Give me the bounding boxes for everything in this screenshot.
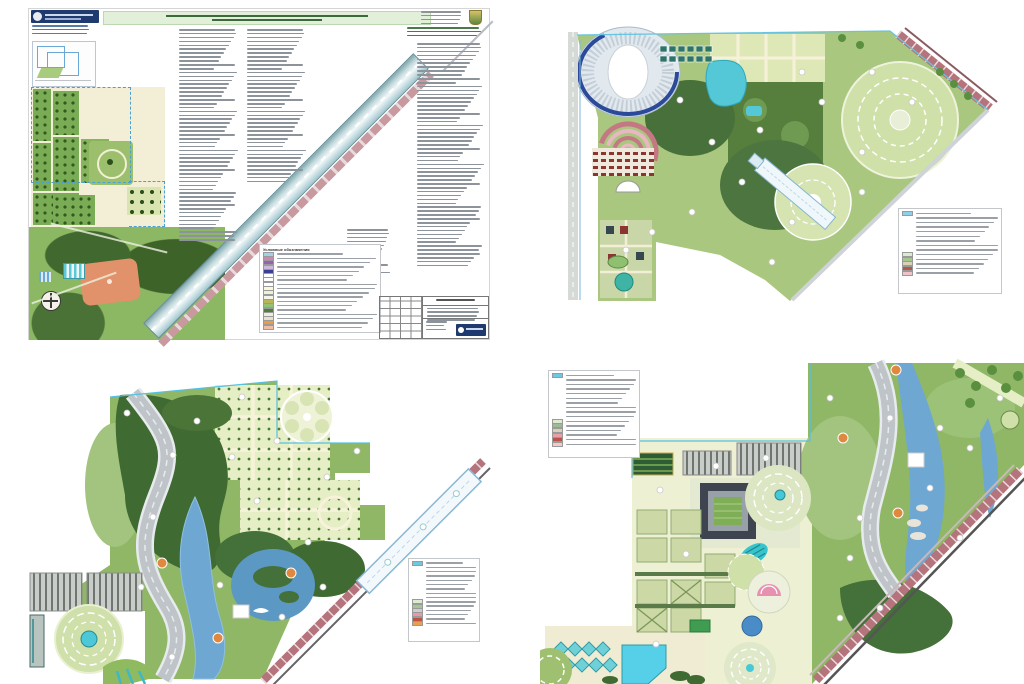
legend-row-text bbox=[277, 327, 363, 328]
text-line bbox=[427, 315, 477, 317]
legend-row-text bbox=[277, 288, 375, 289]
text-line bbox=[417, 253, 480, 255]
text-line bbox=[247, 161, 298, 163]
text-line bbox=[179, 60, 219, 62]
text-line bbox=[417, 113, 480, 115]
text-line bbox=[417, 206, 481, 208]
text-line bbox=[247, 181, 286, 183]
legend-row-text bbox=[916, 249, 999, 250]
text-line bbox=[247, 154, 303, 156]
legend-swatch bbox=[902, 211, 913, 216]
text-line bbox=[179, 224, 216, 226]
text-line bbox=[407, 35, 477, 37]
text-line bbox=[179, 37, 234, 39]
text-line bbox=[417, 183, 480, 185]
text-line bbox=[247, 72, 305, 74]
text-line bbox=[417, 191, 464, 193]
text-line bbox=[417, 214, 476, 216]
red-pavilion-rows bbox=[592, 148, 654, 176]
text-line bbox=[247, 122, 298, 124]
legend-row-text bbox=[426, 580, 472, 581]
text-line bbox=[179, 91, 224, 93]
text-line bbox=[407, 31, 481, 33]
text-line bbox=[179, 126, 227, 128]
legend-row-text bbox=[566, 379, 637, 380]
legend-row bbox=[412, 621, 476, 625]
text-line bbox=[179, 103, 217, 105]
text-line bbox=[417, 140, 472, 142]
legend-row-text bbox=[426, 623, 477, 624]
small-pond bbox=[39, 272, 51, 282]
legend-row-text bbox=[566, 393, 626, 394]
text-line bbox=[179, 154, 235, 156]
text-line bbox=[179, 200, 231, 202]
text-line bbox=[417, 86, 482, 88]
text-line bbox=[347, 237, 387, 239]
text-line bbox=[179, 52, 224, 54]
text-line bbox=[417, 117, 460, 119]
legend-row-text bbox=[566, 388, 631, 389]
text-line bbox=[417, 203, 456, 205]
text-line bbox=[417, 74, 462, 76]
text-line bbox=[179, 165, 228, 167]
legend-row-text bbox=[277, 322, 368, 323]
text-line bbox=[179, 45, 229, 47]
specification-column-1 bbox=[179, 29, 241, 243]
text-line bbox=[417, 257, 474, 259]
text-line bbox=[417, 78, 480, 80]
text-line bbox=[247, 138, 288, 140]
legend-row-text bbox=[277, 253, 343, 254]
text-line bbox=[247, 83, 297, 85]
text-line bbox=[417, 245, 482, 247]
text-line bbox=[247, 177, 289, 179]
text-line bbox=[179, 204, 235, 206]
text-line bbox=[179, 196, 234, 198]
legend-row-text bbox=[277, 262, 370, 263]
plaza-fountain bbox=[81, 631, 97, 647]
legend-row-text bbox=[916, 263, 984, 264]
text-line bbox=[179, 48, 226, 50]
legend-row-text bbox=[426, 562, 463, 563]
text-line bbox=[417, 43, 480, 45]
text-line bbox=[179, 192, 236, 194]
text-line bbox=[417, 238, 459, 240]
text-line bbox=[247, 48, 294, 50]
text-line bbox=[417, 218, 480, 220]
logo-text-bar bbox=[45, 18, 81, 20]
legend-row-text bbox=[277, 301, 358, 302]
text-line bbox=[247, 150, 306, 152]
text-line bbox=[417, 136, 474, 138]
legend-plan2 bbox=[898, 208, 1002, 294]
legend-row-text bbox=[277, 266, 365, 267]
legend-swatch bbox=[552, 373, 563, 378]
text-line bbox=[179, 80, 232, 82]
text-line bbox=[427, 311, 479, 313]
legend-row-text bbox=[916, 259, 989, 260]
text-line bbox=[179, 239, 235, 241]
plan-variant-1-sheet[interactable]: Условные обозначения bbox=[28, 8, 490, 340]
text-line bbox=[179, 212, 224, 214]
text-line bbox=[179, 227, 214, 229]
legend-swatch bbox=[412, 621, 423, 626]
small-pool bbox=[746, 106, 762, 116]
text-line bbox=[247, 45, 297, 47]
text-line bbox=[179, 181, 218, 183]
text-line bbox=[417, 125, 483, 127]
legend-row-text bbox=[426, 614, 468, 615]
text-line bbox=[247, 95, 290, 97]
legend-row-text bbox=[426, 605, 475, 606]
specification-column-2 bbox=[247, 29, 309, 185]
text-line bbox=[417, 179, 472, 181]
text-line bbox=[417, 47, 481, 49]
legend-row-text bbox=[916, 226, 990, 227]
legend-row-text bbox=[277, 305, 352, 306]
text-line bbox=[179, 161, 230, 163]
park-path bbox=[51, 223, 168, 254]
legend-row-text bbox=[916, 268, 979, 269]
legend-row-text bbox=[277, 258, 376, 259]
text-line bbox=[247, 118, 300, 120]
legend-row-text bbox=[566, 434, 617, 435]
text-line bbox=[407, 27, 479, 29]
legend-row-text bbox=[426, 575, 475, 576]
legend-swatch bbox=[263, 325, 274, 330]
text-line bbox=[247, 91, 292, 93]
legend-row-text bbox=[566, 407, 637, 408]
stamp-logo bbox=[456, 324, 486, 336]
legend-row-text bbox=[426, 588, 466, 589]
legend-row-text bbox=[916, 222, 995, 223]
text-line bbox=[417, 51, 479, 53]
legend-sheet1: Условные обозначения bbox=[259, 244, 381, 333]
text-line bbox=[179, 150, 238, 152]
stamp-main bbox=[422, 297, 488, 338]
text-line bbox=[417, 230, 465, 232]
legend-row-text bbox=[277, 292, 369, 293]
text-line bbox=[247, 87, 295, 89]
legend-row-text bbox=[566, 444, 637, 445]
masterplan-collage-board: Условные обозначения bbox=[0, 0, 1024, 684]
text-line bbox=[417, 171, 478, 173]
park-plan-schematic bbox=[31, 87, 165, 229]
sports-court bbox=[690, 620, 710, 632]
text-line bbox=[179, 231, 237, 233]
legend-row-text bbox=[426, 610, 471, 611]
text-line bbox=[247, 80, 300, 82]
white-plaza bbox=[908, 453, 924, 467]
text-line bbox=[32, 29, 89, 31]
text-line bbox=[179, 87, 227, 89]
legend-row-text bbox=[916, 245, 999, 246]
text-line bbox=[247, 56, 289, 58]
sheet-title-bar bbox=[103, 11, 431, 25]
text-line bbox=[417, 249, 479, 251]
inset-road-line bbox=[35, 80, 91, 81]
text-line bbox=[247, 52, 292, 54]
text-line bbox=[247, 29, 303, 31]
text-line bbox=[417, 241, 456, 243]
text-line bbox=[179, 169, 235, 171]
text-line bbox=[179, 138, 220, 140]
text-line bbox=[179, 41, 231, 43]
legend-row-text bbox=[916, 272, 975, 273]
legend-row-text bbox=[916, 236, 980, 237]
text-line bbox=[32, 25, 88, 27]
legend-plan4 bbox=[548, 370, 640, 458]
specification-column-3 bbox=[417, 43, 487, 269]
text-line bbox=[347, 229, 388, 231]
text-line bbox=[179, 208, 226, 210]
text-line bbox=[417, 226, 467, 228]
organization-logo bbox=[31, 10, 99, 23]
ring-garden bbox=[1001, 411, 1019, 429]
legend-row-text bbox=[566, 384, 635, 385]
text-line bbox=[417, 70, 465, 72]
text-line bbox=[417, 234, 462, 236]
text-line bbox=[417, 82, 456, 84]
text-line bbox=[417, 94, 477, 96]
text-line bbox=[417, 101, 471, 103]
text-line bbox=[247, 33, 304, 35]
legend-row bbox=[552, 442, 636, 447]
text-line bbox=[179, 29, 235, 31]
legend-row bbox=[902, 271, 998, 276]
legend-row-text bbox=[277, 275, 353, 276]
text-line bbox=[179, 134, 235, 136]
text-line bbox=[421, 23, 458, 25]
legend-row bbox=[263, 325, 377, 329]
text-line bbox=[247, 146, 283, 148]
text-line bbox=[417, 175, 475, 177]
legend-rows bbox=[263, 252, 377, 329]
legend-row-text bbox=[426, 593, 477, 594]
text-line bbox=[179, 111, 237, 113]
corner-note bbox=[421, 11, 465, 27]
text-line bbox=[247, 41, 299, 43]
legend-row-text bbox=[916, 213, 972, 214]
text-line bbox=[417, 199, 458, 201]
text-line bbox=[179, 33, 236, 35]
logo-emblem-icon bbox=[33, 12, 42, 21]
text-line bbox=[179, 235, 234, 237]
legend-rows bbox=[902, 211, 998, 275]
text-line bbox=[417, 129, 480, 131]
text-line bbox=[179, 177, 221, 179]
text-line bbox=[417, 168, 481, 170]
text-line bbox=[247, 142, 285, 144]
text-line bbox=[417, 148, 480, 150]
swimming-pool bbox=[706, 60, 746, 106]
text-line bbox=[179, 107, 214, 109]
inset-map-caption bbox=[32, 25, 94, 37]
text-line bbox=[179, 72, 237, 74]
legend-row-text bbox=[566, 411, 637, 412]
legend-row-text bbox=[566, 416, 634, 417]
plan-variant-4[interactable] bbox=[540, 358, 1024, 684]
text-line bbox=[247, 134, 303, 136]
legend-row-text bbox=[916, 240, 976, 241]
plan-variant-2[interactable] bbox=[560, 10, 1022, 310]
text-line bbox=[417, 164, 484, 166]
legend-row-text bbox=[277, 318, 374, 319]
legend-row-text bbox=[566, 375, 615, 376]
legend-row-text bbox=[426, 567, 477, 568]
text-line bbox=[247, 37, 302, 39]
logo-text-bar bbox=[45, 14, 93, 16]
location-inset-map bbox=[32, 41, 96, 87]
text-line bbox=[179, 64, 235, 66]
site-boundary-dashed bbox=[31, 87, 131, 183]
pool-lanes bbox=[63, 263, 85, 279]
text-line bbox=[417, 90, 479, 92]
planting-block bbox=[53, 195, 95, 225]
text-line bbox=[179, 189, 213, 191]
text-line bbox=[179, 56, 221, 58]
text-line bbox=[417, 132, 477, 134]
legend-row-text bbox=[916, 217, 999, 218]
legend-swatch bbox=[412, 561, 423, 566]
text-line bbox=[421, 15, 461, 17]
legend-row-text bbox=[566, 398, 622, 399]
text-line bbox=[32, 33, 87, 35]
text-line bbox=[247, 169, 303, 171]
round-pond bbox=[742, 616, 762, 636]
text-line bbox=[417, 152, 463, 154]
teal-garden-circle bbox=[615, 273, 633, 291]
legend-rows bbox=[412, 561, 476, 625]
text-line bbox=[417, 144, 469, 146]
text-line bbox=[179, 68, 214, 70]
text-line bbox=[179, 157, 233, 159]
site-boundary-dashed bbox=[129, 181, 165, 227]
text-line bbox=[417, 156, 460, 158]
text-line bbox=[417, 210, 479, 212]
text-line bbox=[247, 64, 303, 66]
legend-row-text bbox=[277, 279, 348, 280]
text-line bbox=[417, 55, 476, 57]
text-line bbox=[179, 216, 221, 218]
text-line bbox=[247, 165, 296, 167]
text-line bbox=[179, 99, 235, 101]
legend-row-text bbox=[566, 439, 637, 440]
text-line bbox=[417, 265, 468, 267]
stamp-revision-table bbox=[380, 297, 422, 338]
legend-row-text bbox=[566, 425, 626, 426]
text-line bbox=[179, 220, 219, 222]
legend-row-text bbox=[426, 618, 465, 619]
text-line bbox=[247, 173, 291, 175]
text-line bbox=[417, 97, 474, 99]
text-line bbox=[179, 142, 217, 144]
legend-plan3 bbox=[408, 558, 480, 642]
text-line bbox=[417, 62, 470, 64]
text-line bbox=[247, 130, 293, 132]
legend-row-text bbox=[916, 254, 994, 255]
text-line bbox=[417, 121, 457, 123]
text-line bbox=[347, 233, 389, 235]
text-line bbox=[417, 66, 467, 68]
coat-of-arms-icon bbox=[469, 10, 482, 25]
sheet-title-line bbox=[212, 19, 323, 21]
text-line bbox=[247, 103, 285, 105]
legend-row-text bbox=[426, 597, 477, 598]
parking-building bbox=[683, 451, 731, 475]
text-line bbox=[179, 185, 216, 187]
text-line bbox=[417, 222, 470, 224]
text-line bbox=[427, 308, 478, 310]
text-line bbox=[417, 59, 473, 61]
text-line bbox=[417, 109, 465, 111]
legend-row-text bbox=[277, 296, 364, 297]
text-line bbox=[417, 105, 468, 107]
text-line bbox=[247, 126, 295, 128]
legend-swatch bbox=[552, 442, 563, 447]
legend-row-text bbox=[916, 231, 985, 232]
title-block bbox=[379, 296, 489, 339]
legend-row-text bbox=[277, 284, 378, 285]
text-line bbox=[179, 76, 234, 78]
text-line bbox=[247, 60, 287, 62]
text-line bbox=[247, 99, 303, 101]
plan-variant-3[interactable] bbox=[25, 355, 515, 684]
text-line bbox=[247, 68, 282, 70]
legend-row-text bbox=[426, 584, 469, 585]
stadium bbox=[576, 27, 680, 117]
text-line bbox=[179, 118, 232, 120]
text-line bbox=[179, 146, 215, 148]
stamp-project-name bbox=[422, 306, 488, 319]
text-line bbox=[247, 107, 282, 109]
text-line bbox=[247, 111, 305, 113]
legend-row-text bbox=[277, 271, 359, 272]
text-line bbox=[179, 122, 230, 124]
legend-row-text bbox=[566, 402, 618, 403]
text-line bbox=[179, 130, 225, 132]
text-line bbox=[179, 95, 222, 97]
building-west bbox=[30, 615, 44, 667]
text-line bbox=[421, 11, 461, 13]
text-line bbox=[247, 157, 301, 159]
legend-row-text bbox=[277, 309, 347, 310]
fountain bbox=[775, 490, 785, 500]
legend-swatch bbox=[902, 271, 913, 276]
text-line bbox=[417, 261, 471, 263]
text-line bbox=[417, 160, 458, 162]
parking-building bbox=[30, 573, 82, 611]
legend-row-text bbox=[277, 314, 378, 315]
text-line bbox=[347, 241, 386, 243]
text-line bbox=[247, 76, 302, 78]
text-line bbox=[421, 19, 460, 21]
legend-row-text bbox=[566, 430, 621, 431]
legend-row-text bbox=[426, 601, 477, 602]
text-line bbox=[179, 173, 223, 175]
text-line bbox=[247, 115, 303, 117]
sheet-title-line bbox=[166, 15, 368, 17]
white-plaza bbox=[233, 605, 249, 618]
text-line bbox=[179, 115, 235, 117]
legend-row-text bbox=[426, 571, 477, 572]
text-line bbox=[179, 83, 229, 85]
legend-row-text bbox=[566, 421, 630, 422]
text-line bbox=[417, 187, 467, 189]
text-line bbox=[417, 195, 461, 197]
inset-park-shape bbox=[37, 68, 63, 78]
legend-rows bbox=[552, 373, 636, 447]
